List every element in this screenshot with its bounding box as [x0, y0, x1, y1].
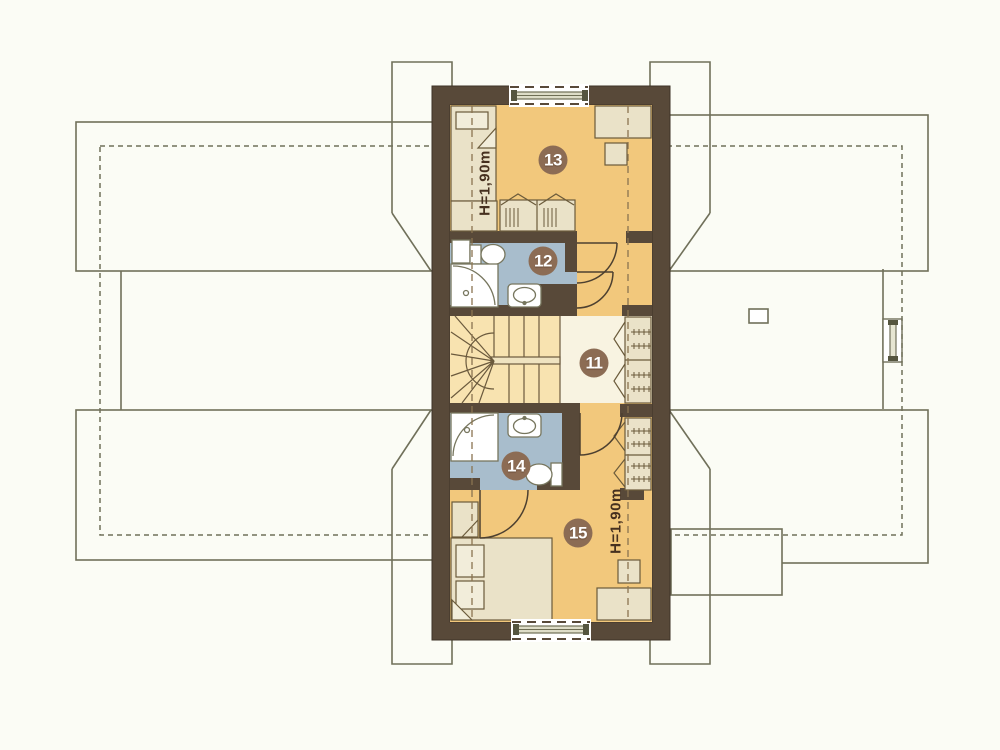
- wall-bath12-right: [565, 243, 577, 272]
- height-label-room13: H=1,90m: [477, 150, 494, 216]
- toilet-bath14: [526, 463, 562, 486]
- porch-roof: [671, 529, 782, 595]
- roof-valley-nw: [392, 213, 431, 271]
- pillow1-room15: [456, 545, 484, 577]
- room-badge-14: 14: [502, 452, 531, 481]
- desk-room15: [597, 588, 651, 620]
- duct-bath12: [537, 284, 577, 307]
- desk-room13: [595, 106, 651, 138]
- roof-wing-bottom-left: [76, 410, 433, 560]
- cabinet-room15: [452, 502, 478, 537]
- stool-room13: [605, 143, 627, 165]
- room-badge-15: 15: [564, 519, 593, 548]
- shower-bath12: [451, 264, 498, 307]
- pillow2-room15: [456, 581, 484, 609]
- room-badge-13: 13: [539, 146, 568, 175]
- wall-11-15-stub: [620, 404, 652, 417]
- roof-valley-se: [669, 410, 710, 469]
- window-top: [509, 84, 589, 107]
- wall-13-12-stub: [626, 231, 652, 243]
- roof-wing-top-right: [669, 115, 928, 271]
- gable-window-right: [883, 319, 902, 362]
- floor-plan-canvas: 13 12 11 14 15 H=1,90m H=1,90m: [0, 0, 1000, 750]
- sink-bath12: [508, 284, 541, 307]
- shower-bath14: [451, 413, 498, 461]
- wardrobe-room13: [500, 194, 575, 231]
- wall-12-11-stub: [622, 305, 652, 316]
- toilet-bath12: [470, 245, 505, 265]
- window-bottom: [511, 619, 591, 642]
- shaft-bath12: [452, 240, 470, 263]
- chimney: [749, 309, 768, 323]
- room-badge-12: 12: [529, 247, 558, 276]
- floor-plan-drawing: [0, 0, 1000, 750]
- roof-valley-ne: [669, 213, 710, 271]
- room-badge-11: 11: [580, 349, 609, 378]
- stair-rail: [491, 357, 560, 364]
- height-label-room15: H=1,90m: [608, 488, 625, 554]
- roof-wing-top-left: [76, 122, 433, 271]
- wall-11-14: [450, 403, 580, 413]
- stool-room15: [618, 560, 640, 583]
- roof-valley-sw: [392, 410, 431, 469]
- wall-14-15-left: [450, 478, 480, 490]
- sink-bath14: [508, 414, 541, 437]
